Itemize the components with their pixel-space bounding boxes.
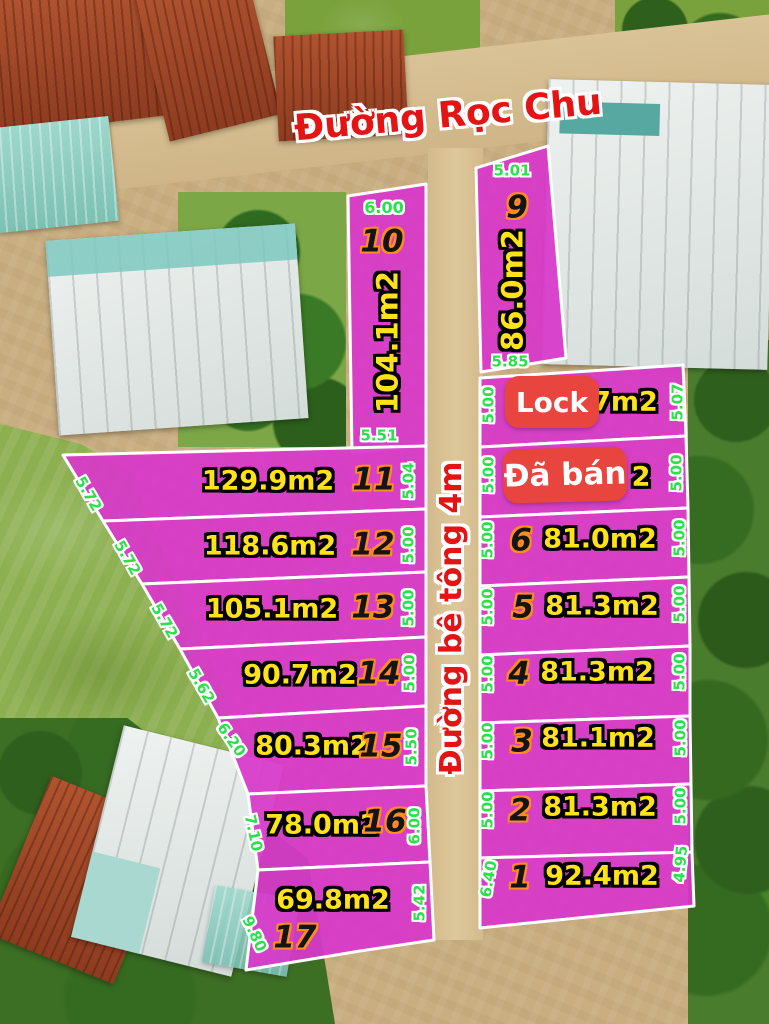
plot-8-dim-left: 5.00 xyxy=(482,386,497,423)
plot-2-dim-right: 5.00 xyxy=(674,787,689,824)
plot-17-area: 69.8m2 xyxy=(276,887,390,914)
plot-15-area: 80.3m2 xyxy=(255,733,369,760)
plot-5-dim-right: 5.00 xyxy=(673,585,688,622)
plot-16-area: 78.0m2 xyxy=(265,812,379,839)
plot-4-number: 4 xyxy=(508,659,530,690)
plot-12-number: 12 xyxy=(351,530,394,561)
plot-12-dim-right: 5.00 xyxy=(402,526,417,563)
plot-10-dim-bottom: 5.51 xyxy=(360,429,397,444)
plot-6-area: 81.0m2 xyxy=(543,526,657,553)
plot-8-area-fragment: 7m2 xyxy=(592,389,658,416)
plot-14-dim-right: 5.00 xyxy=(403,654,418,691)
plot-14-number: 14 xyxy=(357,659,400,690)
plot-2-dim-left: 5.00 xyxy=(481,791,496,828)
plot-4-dim-left: 5.00 xyxy=(481,655,496,692)
plot-17-number: 17 xyxy=(273,923,316,954)
plot-11-number: 11 xyxy=(352,465,395,496)
plot-10-number: 10 xyxy=(360,227,403,258)
plot-4-area: 81.3m2 xyxy=(540,659,654,686)
plot-6-dim-left: 5.00 xyxy=(481,521,496,558)
plot-11-area: 129.9m2 xyxy=(202,468,334,495)
plot-7-dim-right: 5.00 xyxy=(670,454,685,491)
center-road-label: Đường bê tông 4m xyxy=(437,461,467,774)
plot-7-area-fragment: 2 xyxy=(632,464,651,491)
plot-16-number: 16 xyxy=(363,807,406,838)
plot-3-dim-left: 5.00 xyxy=(481,722,496,759)
plot-3-area: 81.1m2 xyxy=(541,725,655,752)
plot-9-number: 9 xyxy=(506,193,528,224)
plot-6-number: 6 xyxy=(510,526,532,557)
plot-3-number: 3 xyxy=(511,727,533,758)
plot-9-area: 86.0m2 xyxy=(499,229,528,351)
plot-15-dim-right: 5.50 xyxy=(405,728,420,765)
plot-17-dim-right: 5.42 xyxy=(413,884,428,921)
plot-5-dim-left: 5.00 xyxy=(481,588,496,625)
plot-1-area: 92.4m2 xyxy=(545,863,659,890)
plot-7-dim-left: 5.00 xyxy=(482,456,497,493)
lock-badge-label: Lock xyxy=(516,386,588,419)
plot-9-dim-top: 5.01 xyxy=(493,164,530,179)
plot-13-area: 105.1m2 xyxy=(206,596,338,623)
plot-10-area: 104.1m2 xyxy=(374,271,403,413)
plot-10-dim-top: 6.00 xyxy=(364,200,403,216)
plot-2-number: 2 xyxy=(509,796,531,827)
plot-5-number: 5 xyxy=(512,593,534,624)
plot-12-area: 118.6m2 xyxy=(204,533,336,560)
sold-badge-label: Đã bán xyxy=(503,455,627,494)
plot-4-dim-right: 5.00 xyxy=(673,653,688,690)
lock-badge: Lock xyxy=(505,376,599,428)
plot-9-dim-bottom: 5.85 xyxy=(491,355,528,370)
aerial-plot-map: Đường Rọc Chu Đường bê tông 4m 6.00 10 1… xyxy=(0,0,769,1024)
plot-5-area: 81.3m2 xyxy=(545,593,659,620)
plot-8-dim-right: 5.07 xyxy=(671,383,686,420)
plot-1-number: 1 xyxy=(509,863,531,894)
plot-2-area: 81.3m2 xyxy=(543,794,657,821)
sold-badge: Đã bán xyxy=(502,446,627,503)
plot-13-number: 13 xyxy=(351,593,394,624)
plot-6-dim-right: 5.00 xyxy=(673,519,688,556)
plot-15-number: 15 xyxy=(359,732,402,763)
plot-1-dim-right: 4.95 xyxy=(672,845,690,883)
plot-11-dim-right: 5.04 xyxy=(402,462,417,499)
plot-13-dim-right: 5.00 xyxy=(402,589,417,626)
plot-16-dim-right: 6.00 xyxy=(408,807,423,844)
plot-3-dim-right: 5.00 xyxy=(674,719,689,756)
plot-14-area: 90.7m2 xyxy=(243,662,357,689)
